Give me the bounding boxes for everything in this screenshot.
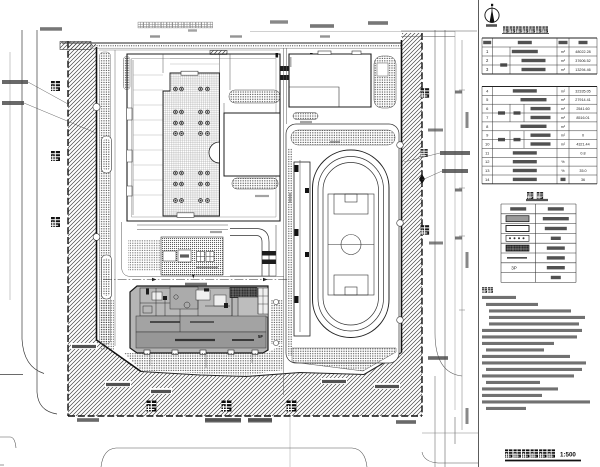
svg-text:12: 12 (485, 159, 490, 164)
svg-text:35.0: 35.0 (579, 169, 586, 173)
svg-text:3P: 3P (511, 266, 517, 271)
svg-text:8516.01: 8516.01 (576, 116, 589, 120)
svg-text:2541.60: 2541.60 (576, 107, 589, 111)
svg-text:13294.46: 13294.46 (575, 68, 590, 72)
svg-text:32335.05: 32335.05 (575, 89, 590, 93)
svg-text:0: 0 (582, 134, 584, 138)
svg-text:37606.52: 37606.52 (575, 59, 590, 63)
svg-text:5F: 5F (258, 334, 263, 339)
svg-text:48022.28: 48022.28 (575, 50, 590, 54)
svg-text:14: 14 (485, 177, 490, 182)
svg-text:4321.44: 4321.44 (576, 143, 589, 147)
svg-text:10: 10 (485, 142, 490, 147)
svg-text:27914.41: 27914.41 (575, 98, 590, 102)
svg-text:13: 13 (485, 168, 490, 173)
svg-text:36: 36 (581, 178, 585, 182)
svg-text:1:500: 1:500 (560, 452, 576, 459)
svg-text:0.8: 0.8 (580, 151, 585, 155)
